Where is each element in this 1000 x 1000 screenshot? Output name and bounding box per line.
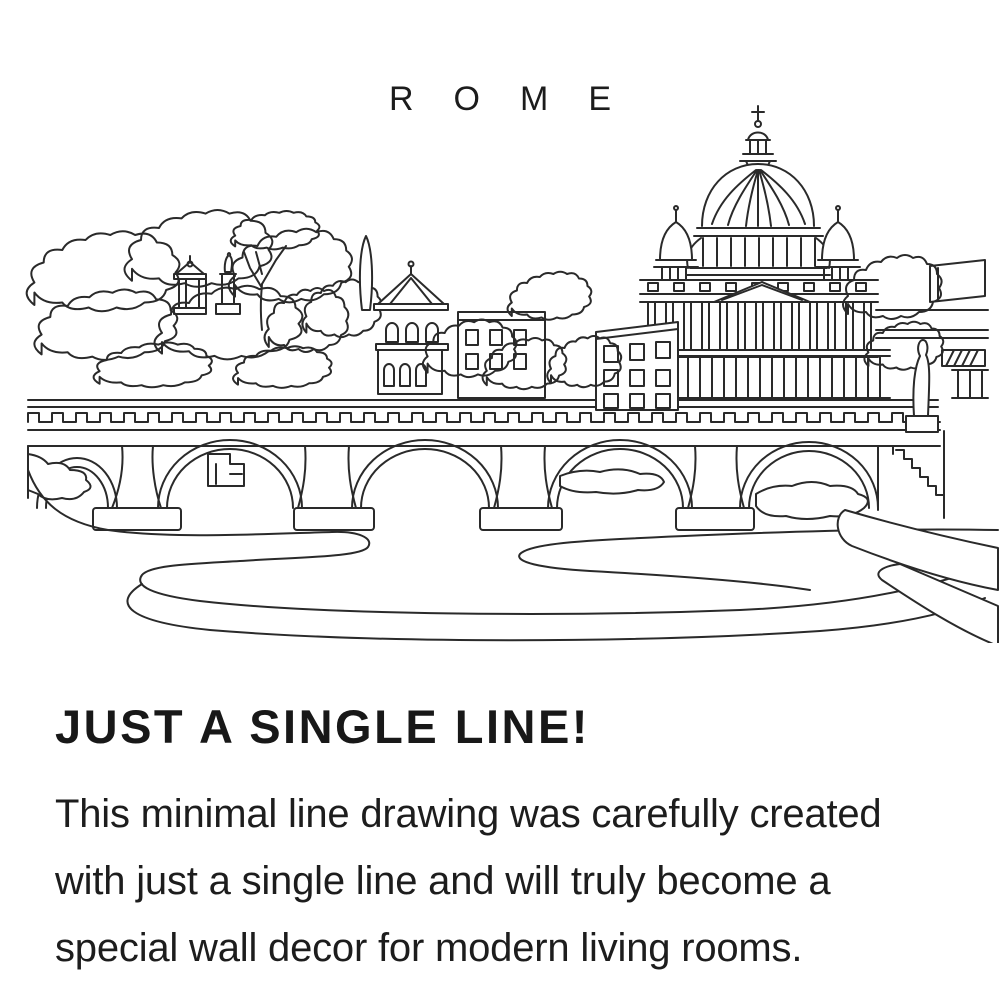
main-dome	[694, 164, 823, 236]
trees-left-lower	[34, 286, 348, 388]
pavilion	[374, 262, 448, 395]
embankment-wall	[28, 400, 938, 407]
line-art-svg	[0, 98, 1000, 643]
statue-right	[906, 340, 938, 432]
dome-drum	[687, 238, 830, 275]
poster: ROME	[0, 0, 1000, 1000]
bridge-arches	[28, 440, 878, 530]
description-line-1: This minimal line drawing was carefully …	[55, 781, 965, 848]
lantern-and-cross	[740, 106, 776, 170]
cypress-tree	[360, 236, 372, 310]
description-line-3: special wall decor for modern living roo…	[55, 915, 965, 982]
description-line-2: with just a single line and will truly b…	[55, 848, 965, 915]
heading: JUST A SINGLE LINE!	[55, 699, 590, 754]
trees-right	[843, 255, 943, 370]
rome-line-art-illustration	[0, 98, 1000, 643]
palazzo-building	[596, 322, 678, 410]
bridge-parapet	[28, 411, 940, 446]
description-paragraph: This minimal line drawing was carefully …	[55, 781, 965, 982]
